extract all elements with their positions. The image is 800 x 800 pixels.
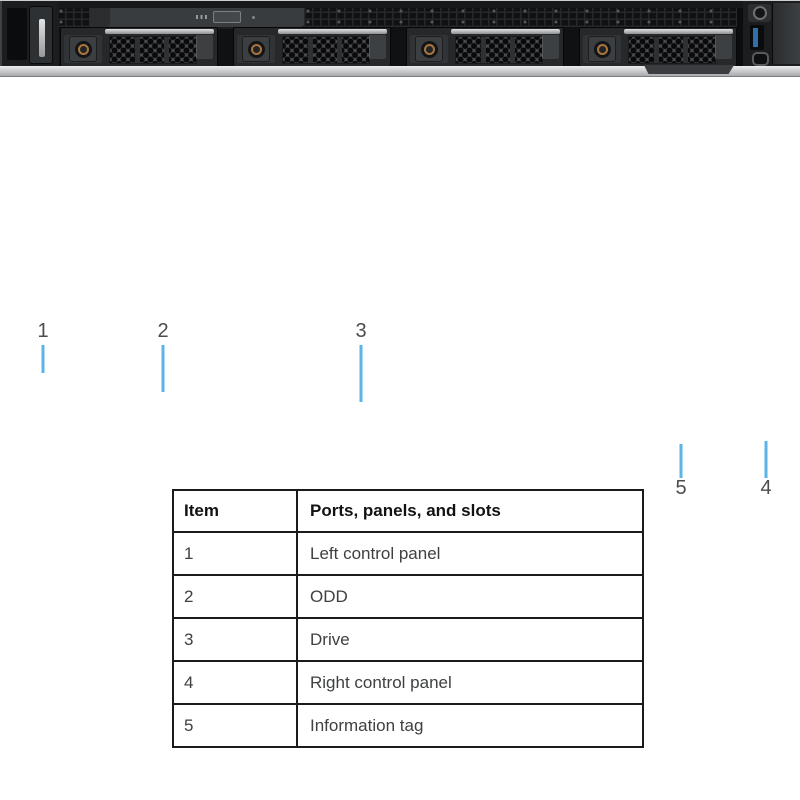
power-icon xyxy=(753,6,767,20)
drive-lock-icon xyxy=(248,41,265,58)
drive-release-block xyxy=(583,35,621,63)
leader-line-5 xyxy=(680,444,683,478)
usb-port-tab xyxy=(753,28,758,47)
leader-line-4 xyxy=(765,441,768,478)
drive-release-button xyxy=(588,36,616,62)
table-row: 4 Right control panel xyxy=(173,661,643,704)
vent-panel-left xyxy=(57,8,90,27)
server-front-view-illustration xyxy=(0,0,800,76)
table-row: 5 Information tag xyxy=(173,704,643,747)
drive-bay-3 xyxy=(579,27,737,67)
drive-lock-icon xyxy=(594,41,611,58)
drive-hex-vent xyxy=(109,36,197,64)
drive-release-block xyxy=(64,35,102,63)
header-description: Ports, panels, and slots xyxy=(297,490,643,532)
drive-release-latch xyxy=(105,29,214,34)
cell-description: Right control panel xyxy=(297,661,643,704)
cell-description: Drive xyxy=(297,618,643,661)
dvd-logo-icon xyxy=(196,15,209,19)
cell-description: Information tag xyxy=(297,704,643,747)
cell-description: ODD xyxy=(297,575,643,618)
drive-handle-tab xyxy=(542,35,559,59)
cell-item: 1 xyxy=(173,532,297,575)
ports-panels-slots-table: Item Ports, panels, and slots 1 Left con… xyxy=(172,489,644,748)
drive-release-button xyxy=(415,36,443,62)
cell-item: 3 xyxy=(173,618,297,661)
drive-hex-vent xyxy=(628,36,716,64)
table-row: 3 Drive xyxy=(173,618,643,661)
odd-tray xyxy=(90,8,304,29)
left-rack-ear xyxy=(0,1,59,66)
left-ear-block xyxy=(7,8,27,60)
callout-number-2: 2 xyxy=(157,321,168,341)
callout-number-4: 4 xyxy=(760,478,771,498)
left-control-panel xyxy=(29,6,53,64)
header-item: Item xyxy=(173,490,297,532)
page: 1 2 3 4 5 xyxy=(0,0,800,800)
drive-release-button xyxy=(69,36,97,62)
drive-release-latch xyxy=(278,29,387,34)
drive-release-latch xyxy=(624,29,733,34)
drive-handle-tab xyxy=(369,35,386,59)
right-control-panel xyxy=(743,1,800,66)
drive-hex-vent xyxy=(455,36,543,64)
cell-item: 2 xyxy=(173,575,297,618)
drive-release-latch xyxy=(451,29,560,34)
cell-description: Left control panel xyxy=(297,532,643,575)
cell-item: 5 xyxy=(173,704,297,747)
micro-usb-port-icon xyxy=(752,52,769,66)
table-row: 2 ODD xyxy=(173,575,643,618)
odd-emergency-eject-hole xyxy=(252,16,255,19)
right-ear-panel xyxy=(772,3,800,64)
drive-hex-vent xyxy=(282,36,370,64)
leader-line-2 xyxy=(162,345,165,392)
cell-item: 4 xyxy=(173,661,297,704)
usb-port-icon xyxy=(750,25,764,50)
status-led-strip xyxy=(39,19,45,57)
callout-number-5: 5 xyxy=(675,478,686,498)
callout-number-1: 1 xyxy=(37,321,48,341)
table-row: 1 Left control panel xyxy=(173,532,643,575)
table-header-row: Item Ports, panels, and slots xyxy=(173,490,643,532)
chassis-top-band xyxy=(0,1,800,8)
odd-eject-button xyxy=(213,11,241,23)
callout-number-3: 3 xyxy=(355,321,366,341)
power-button xyxy=(748,4,771,22)
drive-handle-tab xyxy=(715,35,732,59)
drive-lock-icon xyxy=(75,41,92,58)
drive-handle-tab xyxy=(196,35,213,59)
drive-lock-icon xyxy=(421,41,438,58)
drive-bay-0 xyxy=(60,27,218,67)
drive-bay-2 xyxy=(406,27,564,67)
vent-panel-right xyxy=(304,8,737,27)
drive-release-button xyxy=(242,36,270,62)
drive-release-block xyxy=(237,35,275,63)
leader-line-3 xyxy=(360,345,363,402)
drive-release-block xyxy=(410,35,448,63)
drive-bay-1 xyxy=(233,27,391,67)
information-tag xyxy=(643,65,735,74)
leader-line-1 xyxy=(42,345,45,373)
